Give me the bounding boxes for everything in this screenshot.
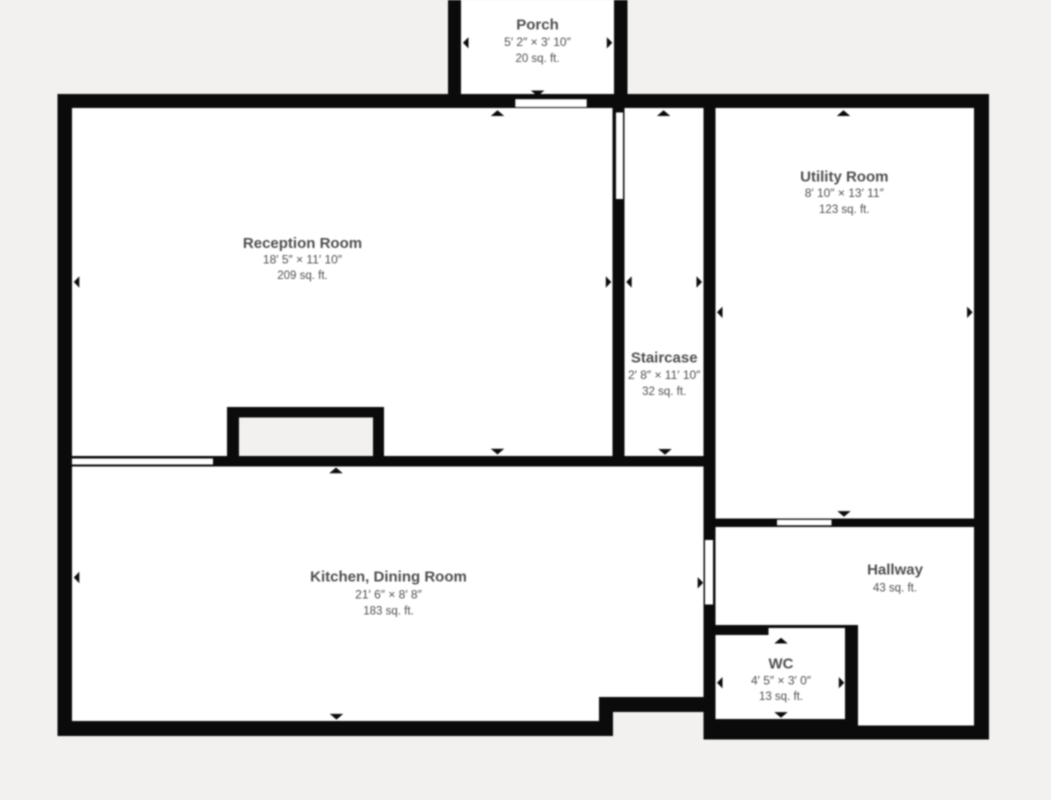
svg-text:WC: WC (769, 656, 794, 673)
svg-text:18′ 5″ × 11′ 10″: 18′ 5″ × 11′ 10″ (263, 253, 343, 267)
svg-text:Utility Room: Utility Room (800, 169, 888, 186)
svg-text:43 sq. ft.: 43 sq. ft. (873, 582, 917, 594)
svg-text:2′ 8″ × 11′ 10″: 2′ 8″ × 11′ 10″ (628, 368, 701, 382)
svg-text:20 sq. ft.: 20 sq. ft. (515, 53, 559, 65)
svg-text:8′ 10″ × 13′ 11″: 8′ 10″ × 13′ 11″ (805, 186, 885, 200)
svg-text:13 sq. ft.: 13 sq. ft. (759, 691, 803, 703)
svg-text:Staircase: Staircase (631, 349, 698, 366)
svg-text:21′ 6″ × 8′ 8″: 21′ 6″ × 8′ 8″ (355, 588, 422, 602)
svg-text:Kitchen, Dining Room: Kitchen, Dining Room (310, 568, 467, 585)
svg-text:Porch: Porch (516, 17, 559, 34)
svg-text:4′ 5″ × 3′ 0″: 4′ 5″ × 3′ 0″ (751, 673, 812, 687)
svg-text:Reception Room: Reception Room (243, 235, 362, 252)
svg-text:123 sq. ft.: 123 sq. ft. (819, 204, 870, 216)
svg-text:Hallway: Hallway (867, 561, 924, 578)
svg-text:32 sq. ft.: 32 sq. ft. (642, 386, 686, 398)
svg-text:209 sq. ft.: 209 sq. ft. (277, 270, 328, 282)
svg-text:5′ 2″ × 3′ 10″: 5′ 2″ × 3′ 10″ (504, 35, 571, 49)
svg-text:183 sq. ft.: 183 sq. ft. (363, 605, 414, 617)
